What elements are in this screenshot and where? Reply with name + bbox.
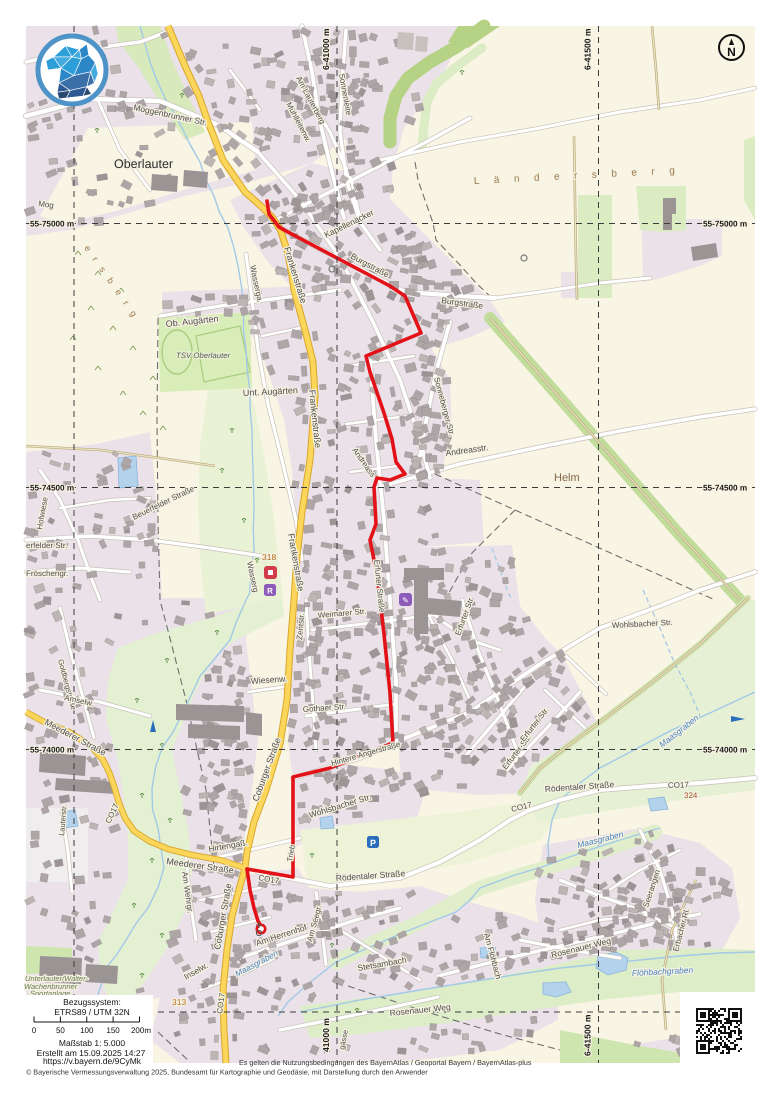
svg-text:https://v.bayern.de/9CyMk: https://v.bayern.de/9CyMk bbox=[43, 1056, 142, 1066]
svg-text:6-41500 m: 6-41500 m bbox=[583, 1014, 593, 1056]
svg-text:Oberlauter: Oberlauter bbox=[114, 157, 173, 171]
svg-text:55-75000 m: 55-75000 m bbox=[30, 220, 74, 229]
svg-text:© Bayerische Vermessungsverwal: © Bayerische Vermessungsverwaltung 2025,… bbox=[26, 1068, 428, 1077]
svg-text:100: 100 bbox=[80, 1026, 94, 1035]
svg-text:N: N bbox=[727, 45, 736, 59]
svg-text:55-74500 m: 55-74500 m bbox=[703, 484, 747, 493]
svg-text:313: 313 bbox=[172, 997, 186, 1007]
svg-text:55-74000 m: 55-74000 m bbox=[30, 746, 74, 755]
svg-text:ETRS89 / UTM 32N: ETRS89 / UTM 32N bbox=[54, 1007, 130, 1017]
svg-text:CO17: CO17 bbox=[668, 780, 690, 790]
svg-text:Maßstab 1: 5.000: Maßstab 1: 5.000 bbox=[59, 1038, 125, 1048]
svg-text:Helm: Helm bbox=[554, 472, 580, 484]
svg-text:P: P bbox=[370, 838, 376, 848]
svg-text:✎: ✎ bbox=[402, 596, 409, 605]
svg-text:50: 50 bbox=[56, 1026, 65, 1035]
svg-text:TSV Oberlauter: TSV Oberlauter bbox=[176, 351, 231, 360]
svg-text:R: R bbox=[267, 587, 273, 596]
svg-text:200m: 200m bbox=[131, 1026, 151, 1035]
svg-text:55-74000 m: 55-74000 m bbox=[703, 746, 747, 755]
svg-text:55-75000 m: 55-75000 m bbox=[703, 220, 747, 229]
svg-text:Bezugssystem:: Bezugssystem: bbox=[63, 997, 121, 1007]
svg-text:0: 0 bbox=[32, 1026, 37, 1035]
svg-text:Es gelten die Nutzungsbedingun: Es gelten die Nutzungsbedingungen des Ba… bbox=[239, 1058, 532, 1067]
svg-text:6-41000 m: 6-41000 m bbox=[321, 28, 331, 70]
svg-text:324: 324 bbox=[684, 791, 698, 800]
svg-text:erfelder Str.: erfelder Str. bbox=[26, 541, 67, 550]
svg-text:Fröschengr.: Fröschengr. bbox=[26, 569, 68, 578]
svg-text:41000 m: 41000 m bbox=[321, 1018, 331, 1052]
svg-text:6-41500 m: 6-41500 m bbox=[583, 28, 593, 70]
svg-text:55-74500 m: 55-74500 m bbox=[30, 484, 74, 493]
svg-text:318: 318 bbox=[262, 552, 276, 562]
svg-text:150: 150 bbox=[106, 1026, 120, 1035]
